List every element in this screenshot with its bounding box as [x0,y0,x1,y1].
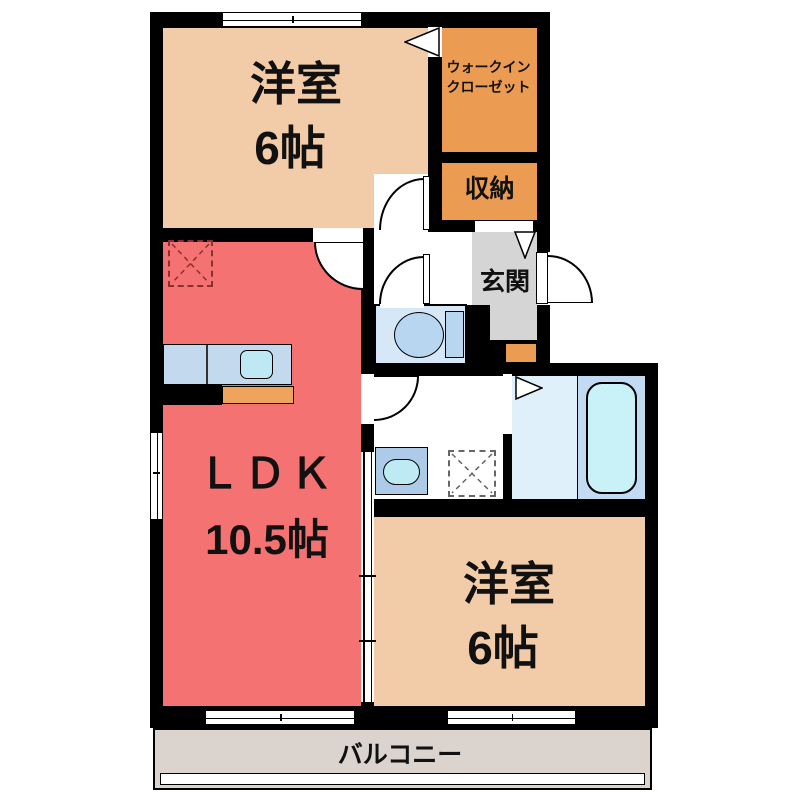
opening-bath-door [503,374,512,434]
window-bottom-ldk [205,710,355,725]
balcony-label: バルコニー [255,742,545,768]
ldk-label: ＬＤＫ [167,452,367,496]
entrance-step-triangle [514,231,536,259]
bedroom-top-door-leaf [423,176,430,230]
wall-wic-storage-divider [428,152,537,163]
kitchen-sink [240,350,273,379]
bedroom-top-size: 6帖 [160,124,420,172]
wic-label-line1: ウォークイン [440,60,537,75]
wic-label-line2: クローゼット [440,80,537,95]
wall-left [150,12,163,728]
window-top [222,12,362,27]
closet-door-triangle [404,27,440,57]
bedroom-bottom-floor [374,517,645,706]
washing-machine-x-mark [450,452,494,495]
washing-machine-space [448,450,496,497]
wall-right-upper [537,12,550,252]
opening-washroom-door [361,374,374,424]
balcony-edge [160,773,645,785]
front-door-arc [548,255,593,303]
bathtub [586,382,637,494]
kitchen-counter-edge [222,386,294,404]
entrance-floor-lower [490,307,537,343]
shoe-cabinet [505,343,537,363]
washroom-door-arc [374,376,419,421]
toilet-door-arc [379,256,424,304]
wall-washroom-bottom [374,499,645,517]
toilet-door-leaf [423,254,430,304]
storage-label: 収納 [442,176,537,202]
wall-kitchen-stub [163,385,222,405]
floorplan-canvas: 洋室 6帖 ウォークイン クローゼット 収納 玄関 ＬＤＫ 10.5帖 洋室 6… [0,0,800,800]
refrigerator-x-mark [170,242,211,285]
bedroom-top-label: 洋室 [166,60,426,108]
window-left [150,432,163,520]
opening-ldk-door [313,228,363,242]
toilet-tank [445,311,464,358]
bedroom-bottom-label: 洋室 [384,560,634,608]
kitchen-counter-divider [206,345,208,384]
bath-door-triangle [515,376,543,400]
washbasin-bowl [383,459,420,485]
ldk-size: 10.5帖 [167,518,367,562]
wall-right-mid [537,305,550,365]
refrigerator-space [168,240,213,287]
wall-toilet-right [467,305,490,365]
wall-right-lower [645,363,658,728]
toilet-bowl [394,312,444,358]
window-bottom-bedroom [447,710,576,725]
bedroom-bottom-size: 6帖 [378,624,628,672]
entrance-label: 玄関 [470,269,540,295]
